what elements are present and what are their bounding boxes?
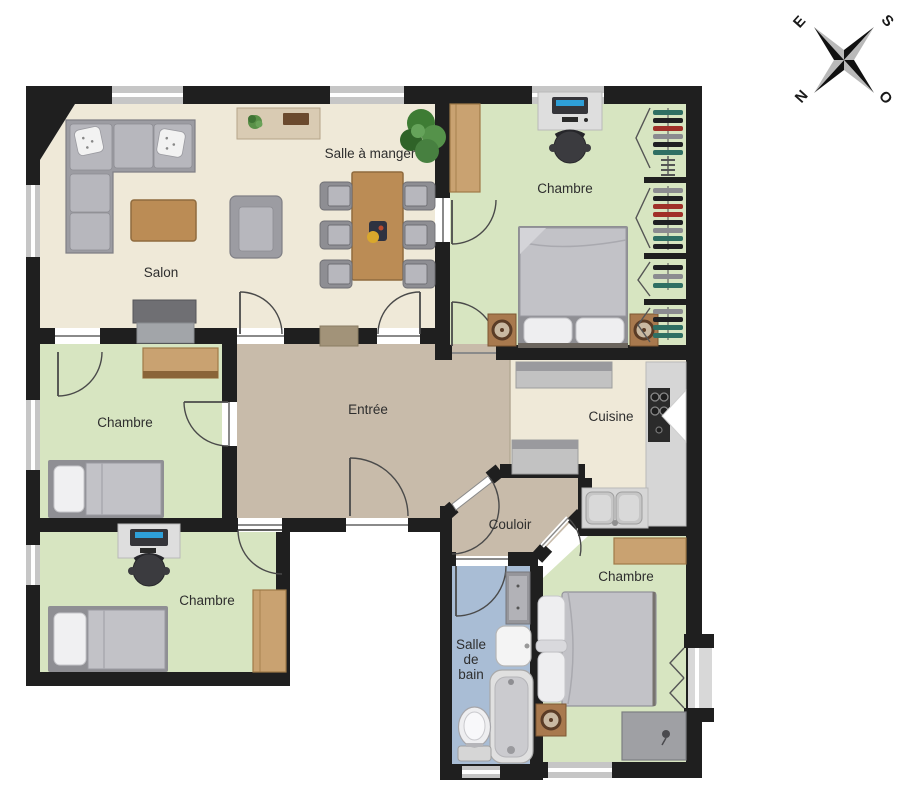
toilet (458, 707, 491, 761)
wall-segment-diagonal (537, 547, 547, 558)
washing-machine (512, 440, 578, 474)
wardrobe (253, 590, 286, 672)
drain (507, 746, 515, 754)
wall-segment (404, 86, 532, 104)
wall-segment (284, 328, 320, 344)
armchair (230, 196, 282, 258)
wall-segment (26, 257, 40, 400)
wall-segment (435, 242, 450, 345)
wall-segment (440, 506, 452, 780)
refrigerator (516, 362, 612, 388)
washbasin (496, 626, 531, 666)
coffee-table (131, 200, 196, 241)
faucet (508, 679, 514, 685)
wall-segment (222, 446, 237, 518)
room-label-cuisine: Cuisine (588, 409, 633, 424)
pillow (538, 652, 565, 702)
desk-wood (614, 538, 686, 564)
desk (118, 524, 180, 558)
wall-segment (604, 86, 702, 104)
doormat (320, 326, 358, 346)
compass-letter-ouest: O (875, 88, 896, 108)
bolster (536, 640, 567, 652)
room-label-salle-de-bain-2: de (463, 652, 478, 667)
room-label-chambre-haut-droite: Chambre (537, 181, 593, 196)
window (26, 185, 40, 257)
compass-letter-est: E (790, 13, 809, 32)
room-label-salle-de-bain-1: Salle (456, 637, 486, 652)
desk-gray (622, 712, 686, 760)
table-centerpiece (367, 221, 387, 243)
compass-letter-sud: S (878, 12, 897, 31)
dresser (143, 348, 218, 378)
wardrobe (450, 104, 480, 192)
wall-segment (26, 585, 40, 686)
floor-plan-page: Salon Salle à manger Chambre Chambre Ent… (0, 0, 920, 800)
pillow (538, 596, 565, 646)
room-label-couloir: Couloir (489, 517, 532, 532)
wall-segment (26, 104, 40, 185)
kitchen-sink (586, 492, 642, 526)
pillow (576, 318, 624, 344)
floor-plan: Salon Salle à manger Chambre Chambre Ent… (0, 0, 920, 800)
room-label-salon: Salon (144, 265, 179, 280)
room-label-entree: Entrée (348, 402, 388, 417)
wall-segment-diagonal (490, 470, 500, 478)
kitchen-counter-right (646, 362, 686, 526)
room-label-salle-de-bain-3: bain (458, 667, 484, 682)
nightstand (536, 704, 566, 736)
room-label-chambre-bas-gauche: Chambre (179, 593, 235, 608)
single-bed (48, 460, 164, 518)
wall-segment (222, 344, 237, 402)
room-label-chambre-bas-droite: Chambre (598, 569, 654, 584)
bathroom-cabinet (506, 572, 530, 624)
room-label-chambre-milieu-gauche: Chambre (97, 415, 153, 430)
window (462, 766, 500, 778)
window (26, 400, 40, 470)
bathtub (490, 670, 533, 763)
wall-closet-divider (644, 177, 686, 183)
wall-segment (282, 518, 346, 532)
room-label-salle-a-manger: Salle à manger (325, 146, 416, 161)
pillow (54, 613, 86, 665)
compass-letter-nord: N (792, 87, 812, 106)
wall-segment (26, 86, 112, 104)
sofa-pillow (156, 128, 186, 158)
sideboard (237, 108, 320, 139)
wall-segment (26, 470, 40, 545)
wall-niche-stub (684, 634, 714, 648)
tray (283, 113, 309, 125)
compass-rose: E S N O (790, 12, 897, 108)
keyboard (140, 548, 156, 553)
pillow (524, 318, 572, 344)
single-bed (48, 606, 168, 672)
keyboard (562, 117, 578, 122)
mouse (584, 118, 588, 122)
closet-niche (688, 648, 712, 708)
tv-cabinet (133, 300, 196, 343)
wall-segment (358, 328, 377, 344)
wall-segment-diagonal (446, 507, 454, 514)
wall-segment (26, 672, 290, 686)
window (112, 86, 183, 104)
window (330, 86, 404, 104)
nightstand (488, 314, 516, 346)
wall-segment (183, 86, 330, 104)
double-bed (518, 226, 628, 348)
wall-segment (40, 328, 55, 344)
window (26, 545, 40, 585)
wall-closet-divider (644, 299, 686, 305)
window (548, 762, 612, 778)
desk (538, 92, 602, 130)
wall-closet-divider (644, 253, 686, 259)
wall-niche-stub (684, 708, 714, 722)
double-bed (536, 592, 656, 706)
desk-lamp (662, 730, 670, 738)
pillow (54, 466, 84, 512)
sofa-pillow (74, 126, 105, 157)
wall-segment (435, 345, 452, 360)
